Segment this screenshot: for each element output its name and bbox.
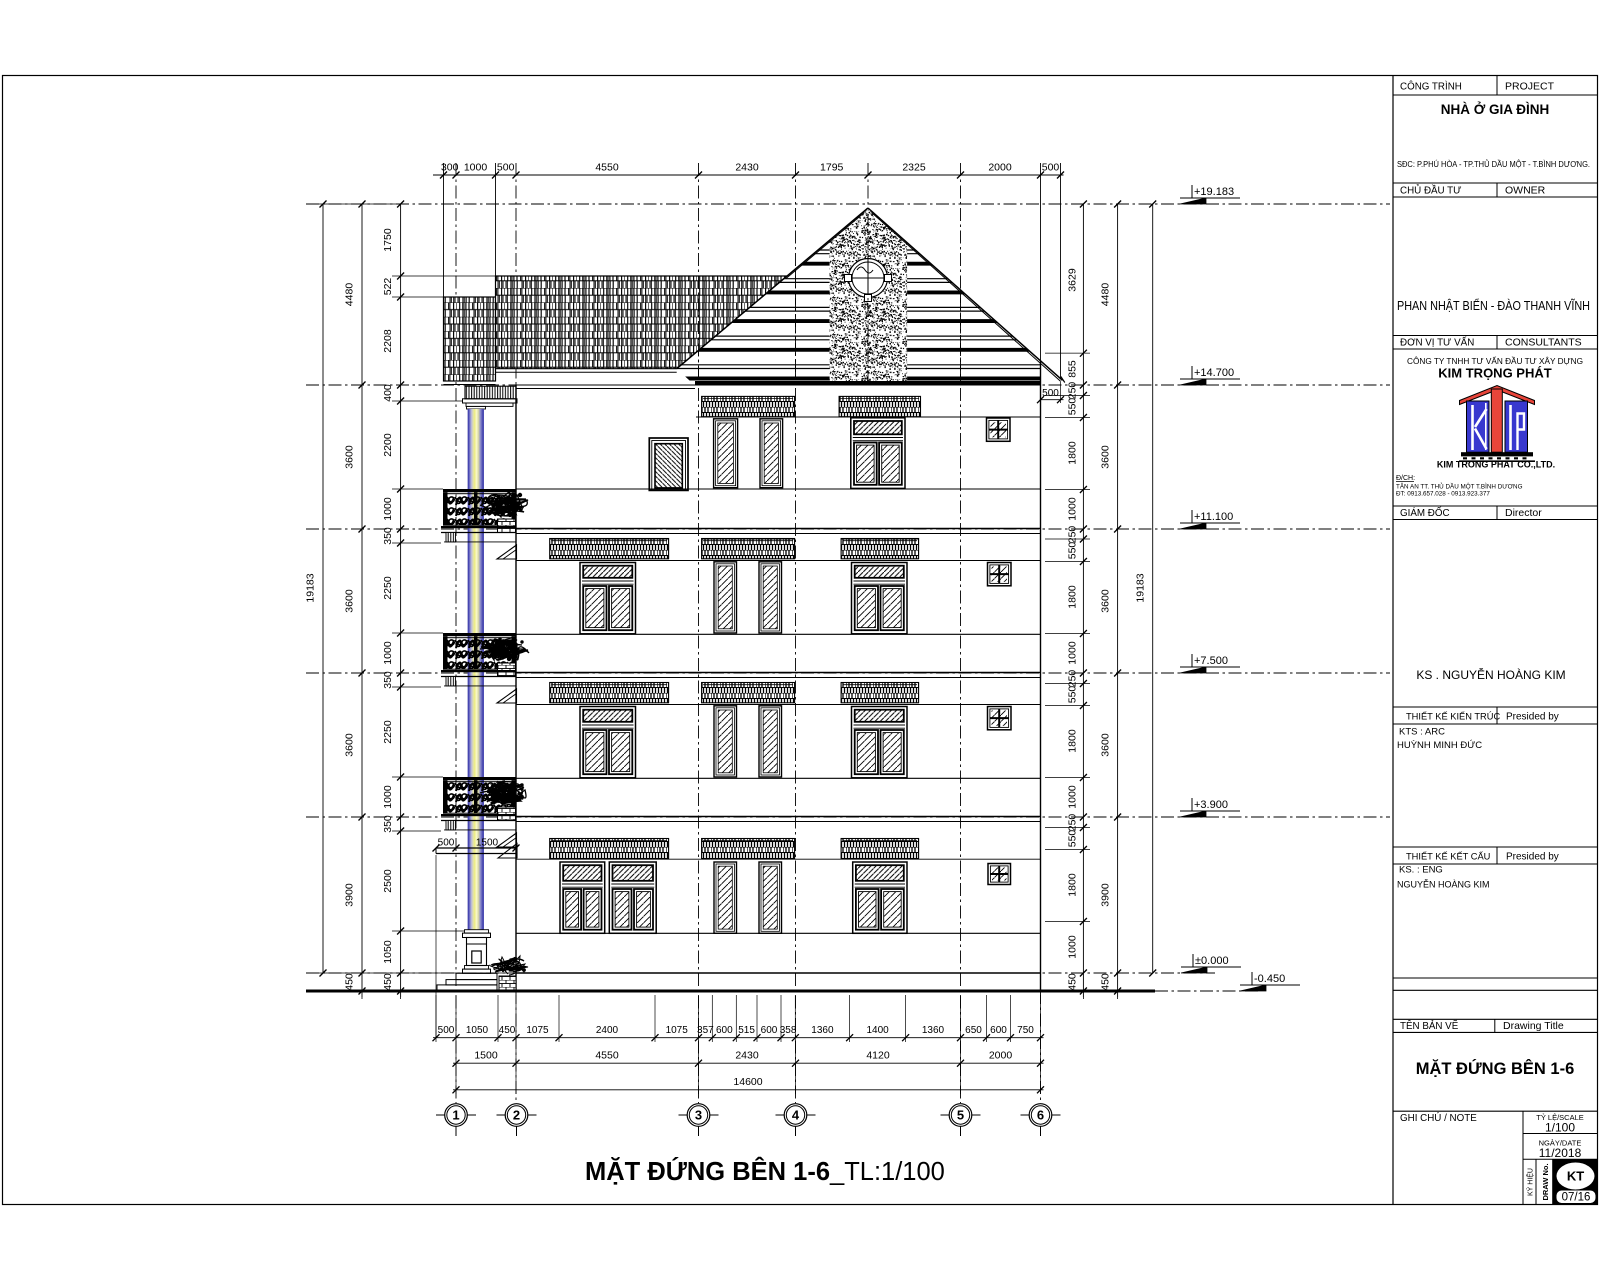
svg-text:KTS : ARC: KTS : ARC	[1399, 727, 1445, 738]
svg-text:+11.100: +11.100	[1194, 511, 1233, 523]
svg-text:550: 550	[1067, 830, 1079, 848]
svg-text:1500: 1500	[476, 838, 499, 849]
svg-text:250: 250	[1067, 526, 1079, 544]
svg-text:1500: 1500	[474, 1050, 498, 1062]
svg-text:5: 5	[957, 1108, 964, 1123]
svg-text:3600: 3600	[344, 445, 356, 469]
svg-text:TÊN BẢN VẼ: TÊN BẢN VẼ	[1400, 1020, 1459, 1032]
svg-text:PHAN NHẬT BIỂN - ĐÀO THANH VĨN: PHAN NHẬT BIỂN - ĐÀO THANH VĨNH	[1397, 298, 1590, 313]
svg-text:4: 4	[792, 1108, 800, 1123]
svg-text:Director: Director	[1505, 507, 1542, 519]
svg-text:500: 500	[438, 838, 455, 849]
svg-text:300: 300	[441, 162, 459, 174]
svg-text:600: 600	[761, 1025, 778, 1036]
svg-text:1: 1	[452, 1108, 459, 1123]
svg-text:2250: 2250	[382, 720, 394, 744]
svg-text:+7.500: +7.500	[1194, 655, 1228, 667]
svg-text:4550: 4550	[595, 1050, 619, 1062]
svg-text:2: 2	[513, 1108, 520, 1123]
svg-text:450: 450	[344, 973, 356, 991]
svg-text:2500: 2500	[382, 869, 394, 893]
svg-text:450: 450	[1100, 973, 1112, 991]
svg-text:500: 500	[1042, 162, 1060, 174]
svg-text:855: 855	[1067, 360, 1079, 378]
svg-text:450: 450	[382, 973, 394, 991]
svg-text:Drawing Title: Drawing Title	[1503, 1020, 1564, 1032]
svg-text:1750: 1750	[382, 228, 394, 252]
svg-text:522: 522	[382, 278, 394, 296]
svg-text:KÝ HIỆU: KÝ HIỆU	[1526, 1168, 1535, 1196]
svg-text:1400: 1400	[866, 1025, 889, 1036]
svg-text:Đ/CH:: Đ/CH:	[1396, 475, 1415, 482]
svg-text:GIÁM ĐỐC: GIÁM ĐỐC	[1400, 507, 1450, 519]
svg-text:+14.700: +14.700	[1194, 367, 1234, 379]
svg-text:3600: 3600	[344, 589, 356, 613]
svg-text:PROJECT: PROJECT	[1505, 81, 1555, 93]
svg-text:2430: 2430	[735, 1050, 759, 1062]
svg-text:1000: 1000	[1067, 935, 1079, 959]
svg-text:SĐC: P.PHÚ HÒA - TP.THỦ DẦU MỘ: SĐC: P.PHÚ HÒA - TP.THỦ DẦU MỘT - T.BÌNH…	[1397, 159, 1590, 169]
svg-text:1000: 1000	[1067, 641, 1079, 665]
svg-text:CÔNG TY TNHH TƯ VẤN ĐẦU TƯ XÂY: CÔNG TY TNHH TƯ VẤN ĐẦU TƯ XÂY DỰNG	[1407, 356, 1583, 366]
svg-text:11/2018: 11/2018	[1539, 1146, 1582, 1160]
svg-text:600: 600	[716, 1025, 733, 1036]
svg-text:1800: 1800	[1067, 873, 1079, 897]
svg-text:3600: 3600	[1100, 445, 1112, 469]
svg-text:750: 750	[1017, 1025, 1034, 1036]
svg-text:±0.000: ±0.000	[1195, 955, 1229, 967]
svg-text:CHỦ ĐẦU TƯ: CHỦ ĐẦU TƯ	[1400, 185, 1462, 197]
svg-text:KIM TRONG PHAT CO.,LTD.: KIM TRONG PHAT CO.,LTD.	[1437, 460, 1555, 470]
svg-text:515: 515	[738, 1025, 755, 1036]
svg-text:2250: 2250	[382, 576, 394, 600]
svg-text:07/16: 07/16	[1562, 1192, 1591, 1204]
svg-text:650: 650	[965, 1025, 982, 1036]
svg-text:3: 3	[695, 1108, 702, 1123]
svg-text:357: 357	[697, 1025, 714, 1036]
svg-text:HUỲNH MINH ĐỨC: HUỲNH MINH ĐỨC	[1397, 740, 1482, 751]
svg-text:Presided by: Presided by	[1506, 712, 1559, 723]
svg-text:1360: 1360	[922, 1025, 945, 1036]
svg-text:KT: KT	[1567, 1169, 1584, 1184]
svg-text:3900: 3900	[1100, 883, 1112, 907]
svg-text:DRAW No.: DRAW No.	[1541, 1163, 1550, 1200]
svg-text:KIM TRỌNG PHÁT: KIM TRỌNG PHÁT	[1438, 366, 1551, 381]
svg-text:TÂN AN TT. THỦ DẦU MỘT T.BÌNH: TÂN AN TT. THỦ DẦU MỘT T.BÌNH DƯƠNG	[1396, 481, 1523, 491]
svg-text:450: 450	[1067, 973, 1079, 991]
svg-text:1800: 1800	[1067, 585, 1079, 609]
svg-text:KS . NGUYỄN HOÀNG KIM: KS . NGUYỄN HOÀNG KIM	[1416, 667, 1565, 682]
svg-text:THIẾT KẾ KIẾN TRÚC: THIẾT KẾ KIẾN TRÚC	[1406, 712, 1500, 722]
svg-text:500: 500	[1042, 388, 1059, 399]
svg-text:4550: 4550	[595, 162, 619, 174]
svg-text:1000: 1000	[1067, 497, 1079, 521]
svg-text:2325: 2325	[902, 162, 926, 174]
svg-text:550: 550	[1067, 686, 1079, 704]
svg-text:+3.900: +3.900	[1194, 799, 1228, 811]
svg-text:1000: 1000	[382, 641, 394, 665]
svg-text:ĐƠN VỊ TƯ VẤN: ĐƠN VỊ TƯ VẤN	[1400, 338, 1474, 349]
svg-text:500: 500	[497, 162, 515, 174]
svg-text:350: 350	[382, 671, 394, 689]
svg-text:MẶT ĐỨNG BÊN 1-6_TL:1/100: MẶT ĐỨNG BÊN 1-6_TL:1/100	[585, 1156, 945, 1186]
svg-text:2000: 2000	[988, 162, 1012, 174]
svg-text:NHÀ Ở GIA ĐÌNH: NHÀ Ở GIA ĐÌNH	[1441, 102, 1550, 117]
svg-text:1360: 1360	[811, 1025, 834, 1036]
svg-text:1000: 1000	[382, 497, 394, 521]
svg-text:GHI CHÚ / NOTE: GHI CHÚ / NOTE	[1400, 1113, 1477, 1124]
svg-text:2000: 2000	[989, 1050, 1013, 1062]
svg-text:3629: 3629	[1067, 268, 1079, 292]
svg-text:1800: 1800	[1067, 729, 1079, 753]
svg-text:MẶT ĐỨNG BÊN 1-6: MẶT ĐỨNG BÊN 1-6	[1416, 1059, 1575, 1078]
svg-text:1050: 1050	[466, 1025, 489, 1036]
svg-text:CÔNG TRÌNH: CÔNG TRÌNH	[1400, 82, 1462, 93]
svg-text:1000: 1000	[382, 785, 394, 809]
svg-text:-0.450: -0.450	[1254, 973, 1285, 985]
svg-text:2200: 2200	[382, 433, 394, 457]
svg-text:1000: 1000	[1067, 785, 1079, 809]
svg-text:4480: 4480	[1100, 283, 1112, 307]
svg-text:CONSULTANTS: CONSULTANTS	[1505, 337, 1582, 349]
svg-text:1075: 1075	[526, 1025, 549, 1036]
svg-text:1000: 1000	[464, 162, 488, 174]
svg-text:3600: 3600	[344, 733, 356, 757]
svg-text:250: 250	[1067, 814, 1079, 832]
svg-text:250: 250	[1067, 382, 1079, 400]
svg-text:1795: 1795	[820, 162, 844, 174]
svg-text:1050: 1050	[382, 940, 394, 964]
svg-text:19183: 19183	[1135, 573, 1147, 602]
svg-text:6: 6	[1037, 1108, 1044, 1123]
svg-text:19183: 19183	[305, 573, 317, 602]
svg-text:1075: 1075	[666, 1025, 689, 1036]
svg-text:600: 600	[990, 1025, 1007, 1036]
svg-text:4120: 4120	[866, 1050, 890, 1062]
svg-text:550: 550	[1067, 398, 1079, 416]
svg-text:+19.183: +19.183	[1194, 186, 1234, 198]
svg-text:3900: 3900	[344, 883, 356, 907]
svg-text:2430: 2430	[735, 162, 759, 174]
svg-text:1/100: 1/100	[1545, 1121, 1575, 1135]
svg-text:1800: 1800	[1067, 441, 1079, 465]
svg-text:3600: 3600	[1100, 733, 1112, 757]
svg-text:4480: 4480	[344, 283, 356, 307]
svg-text:350: 350	[382, 815, 394, 833]
svg-text:2208: 2208	[382, 329, 394, 353]
svg-text:450: 450	[499, 1025, 516, 1036]
svg-text:250: 250	[1067, 670, 1079, 688]
svg-text:2400: 2400	[596, 1025, 619, 1036]
svg-text:ĐT: 0913.657.028 - 0913.923.37: ĐT: 0913.657.028 - 0913.923.377	[1396, 491, 1490, 498]
svg-text:400: 400	[382, 384, 394, 402]
svg-text:358: 358	[780, 1025, 797, 1036]
svg-text:350: 350	[382, 527, 394, 545]
svg-text:OWNER: OWNER	[1505, 185, 1546, 197]
svg-text:550: 550	[1067, 542, 1079, 560]
svg-text:14600: 14600	[733, 1076, 762, 1088]
svg-text:THIẾT KẾ KẾT CẤU: THIẾT KẾ KẾT CẤU	[1406, 852, 1490, 862]
svg-text:KS. : ENG: KS. : ENG	[1399, 865, 1443, 876]
svg-text:Presided by: Presided by	[1506, 852, 1559, 863]
svg-text:500: 500	[438, 1025, 455, 1036]
svg-text:NGUYỄN HOÀNG KIM: NGUYỄN HOÀNG KIM	[1397, 879, 1490, 890]
svg-text:3600: 3600	[1100, 589, 1112, 613]
